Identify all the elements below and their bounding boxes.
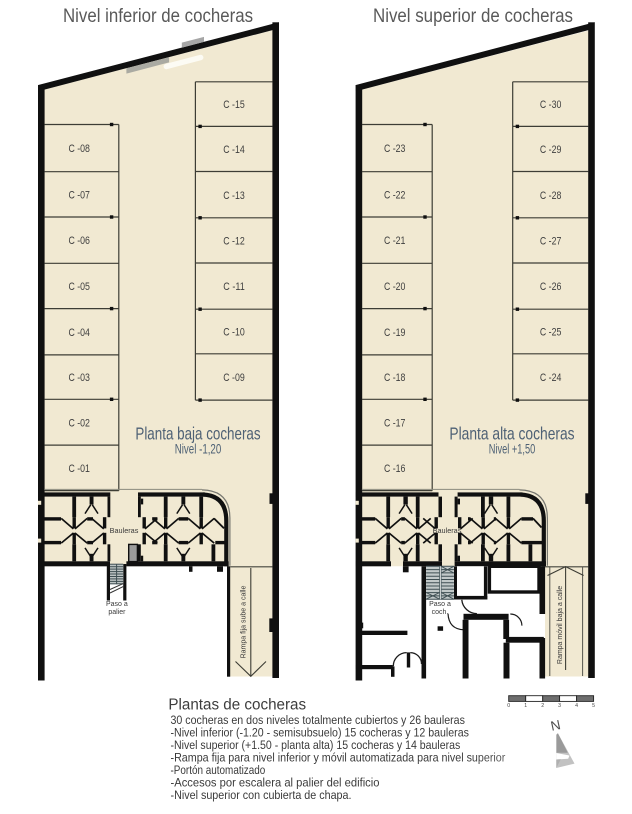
svg-text:palier: palier <box>108 609 126 616</box>
svg-text:1: 1 <box>524 703 527 709</box>
svg-text:C -11: C -11 <box>223 281 245 293</box>
svg-text:Paso a: Paso a <box>106 601 128 608</box>
svg-text:C -25: C -25 <box>540 327 562 339</box>
svg-text:C -15: C -15 <box>223 99 245 111</box>
svg-text:Nivel -1,20: Nivel -1,20 <box>175 442 222 457</box>
svg-text:Nivel inferior de cocheras: Nivel inferior de cocheras <box>63 6 253 27</box>
svg-text:Planta alta cocheras: Planta alta cocheras <box>449 424 574 444</box>
svg-text:C -07: C -07 <box>68 189 90 201</box>
svg-text:C -24: C -24 <box>540 372 562 384</box>
svg-text:-Nivel superior con cubierta d: -Nivel superior con cubierta de chapa. <box>171 788 352 802</box>
svg-text:Bauleras: Bauleras <box>110 526 139 535</box>
svg-text:C -28: C -28 <box>540 190 562 202</box>
svg-text:5: 5 <box>592 703 595 709</box>
svg-text:Planta baja cocheras: Planta baja cocheras <box>135 424 260 444</box>
svg-text:C -02: C -02 <box>68 417 90 429</box>
svg-text:C -29: C -29 <box>540 144 562 156</box>
svg-text:C -18: C -18 <box>384 372 406 384</box>
svg-text:C -01: C -01 <box>68 463 90 475</box>
svg-text:C -12: C -12 <box>223 236 245 248</box>
svg-text:C -06: C -06 <box>68 235 90 247</box>
svg-text:Bauleras: Bauleras <box>433 526 462 535</box>
svg-text:C -21: C -21 <box>384 235 406 247</box>
svg-text:C -22: C -22 <box>384 189 406 201</box>
svg-text:C -14: C -14 <box>223 144 245 156</box>
svg-text:C -04: C -04 <box>68 327 90 339</box>
svg-text:Nivel +1,50: Nivel +1,50 <box>489 442 536 457</box>
svg-text:Rampa móvil baja a calle: Rampa móvil baja a calle <box>557 586 564 664</box>
svg-text:3: 3 <box>558 703 561 709</box>
svg-text:C -08: C -08 <box>68 143 90 155</box>
svg-text:C -20: C -20 <box>384 281 406 293</box>
svg-text:C -23: C -23 <box>384 143 406 155</box>
svg-text:0: 0 <box>507 703 510 709</box>
svg-text:Rampa fija sube a calle: Rampa fija sube a calle <box>240 586 247 659</box>
svg-text:4: 4 <box>575 703 578 709</box>
svg-text:Nivel superior de cocheras: Nivel superior de cocheras <box>373 6 573 27</box>
svg-text:C -10: C -10 <box>223 327 245 339</box>
svg-text:C -30: C -30 <box>540 99 562 111</box>
svg-text:C -03: C -03 <box>68 372 90 384</box>
svg-text:C -09: C -09 <box>223 372 245 384</box>
svg-text:Plantas de cocheras: Plantas de cocheras <box>168 696 306 713</box>
svg-text:2: 2 <box>541 703 544 709</box>
svg-text:C -26: C -26 <box>540 281 562 293</box>
svg-text:C -27: C -27 <box>540 236 562 248</box>
svg-text:C -05: C -05 <box>68 281 90 293</box>
svg-text:C -13: C -13 <box>223 190 245 202</box>
svg-text:C -17: C -17 <box>384 417 406 429</box>
svg-text:coch.: coch. <box>432 609 449 616</box>
svg-text:Paso a: Paso a <box>429 601 451 608</box>
svg-text:C -19: C -19 <box>384 327 406 339</box>
svg-text:C -16: C -16 <box>384 463 406 475</box>
